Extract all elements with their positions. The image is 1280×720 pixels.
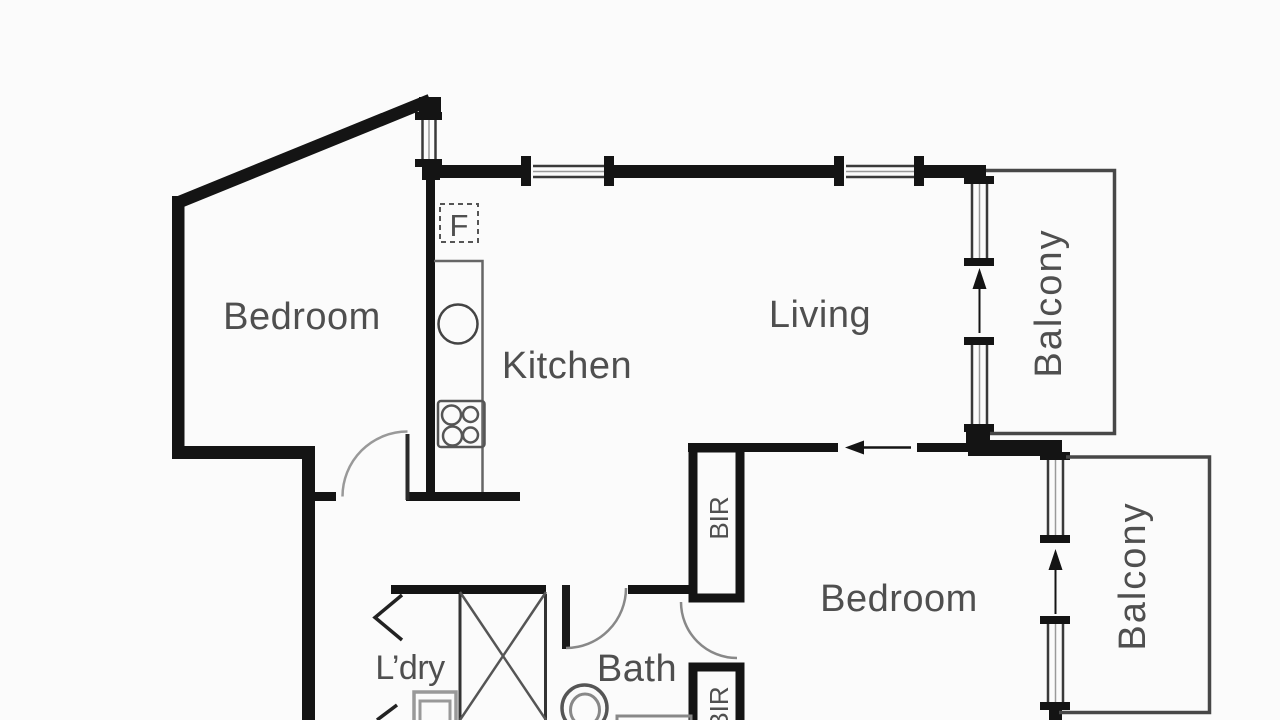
- svg-text:Kitchen: Kitchen: [502, 345, 632, 387]
- svg-text:Bedroom: Bedroom: [820, 578, 978, 620]
- svg-text:Living: Living: [769, 294, 871, 336]
- svg-text:Balcony: Balcony: [1028, 228, 1070, 377]
- svg-text:Bath: Bath: [597, 648, 677, 690]
- svg-text:F: F: [450, 208, 469, 243]
- svg-text:Balcony: Balcony: [1112, 501, 1154, 650]
- svg-text:BIR: BIR: [704, 496, 734, 539]
- svg-text:BIR: BIR: [704, 686, 734, 720]
- svg-text:Bedroom: Bedroom: [223, 296, 381, 338]
- svg-text:L’dry: L’dry: [375, 649, 445, 687]
